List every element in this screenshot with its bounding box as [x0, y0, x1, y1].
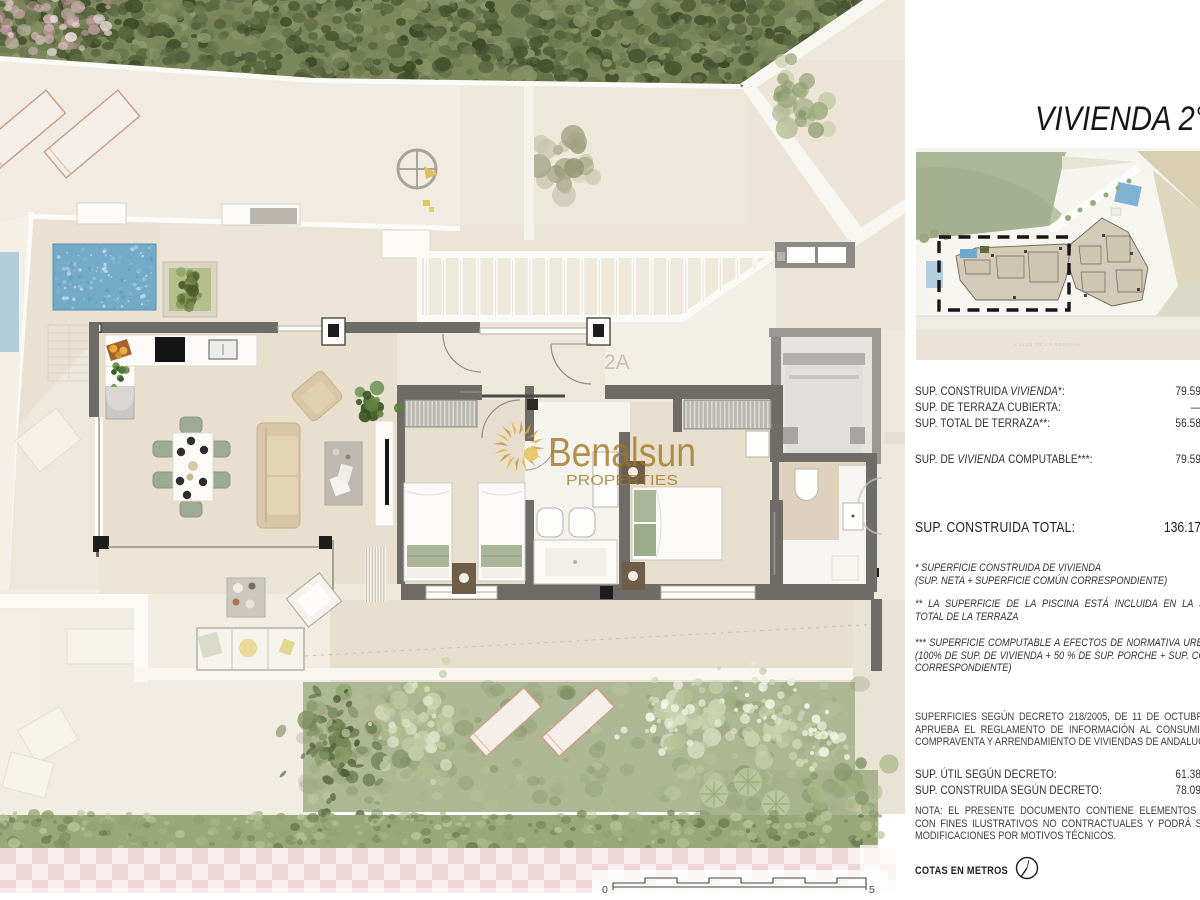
svg-text:2A: 2A [604, 351, 630, 374]
svg-text:5: 5 [869, 884, 875, 896]
svg-text:CALLE DE LA RESERVA: CALLE DE LA RESERVA [1015, 342, 1081, 347]
svg-text:Benalsun: Benalsun [548, 429, 696, 475]
svg-text:PROPERTIES: PROPERTIES [566, 473, 678, 489]
svg-text:0: 0 [602, 884, 608, 896]
